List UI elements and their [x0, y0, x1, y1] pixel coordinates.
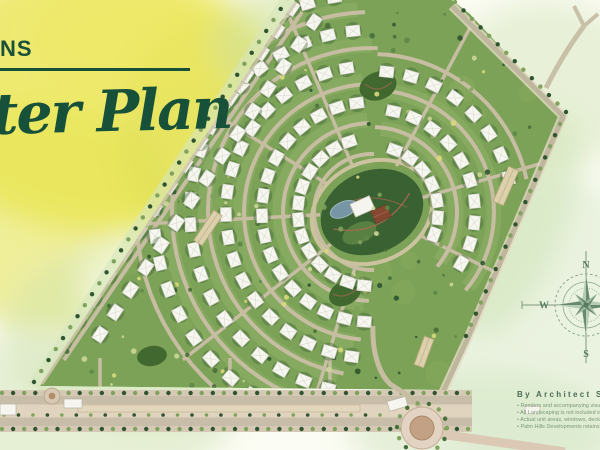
disclaimer-item: Actual unit areas, windows, decks, porc	[517, 417, 600, 424]
compass-label-south: S	[583, 349, 589, 360]
compass-label-west: W	[539, 301, 549, 312]
credits-block: By Architect Sheha Renders and accompany…	[517, 390, 600, 431]
small-roundabout	[44, 388, 60, 404]
disclaimer-item: Renders and accompanying visual mate	[517, 403, 600, 410]
median-strip-building	[78, 405, 360, 412]
compass-label-north: N	[582, 260, 590, 271]
disclaimer-item: All Landscaping is not included in the p	[517, 410, 600, 417]
disclaimer-list: Renders and accompanying visual mate All…	[517, 403, 600, 431]
disclaimer-item: Palm Hills Developments retains the rig	[517, 424, 600, 431]
master-plan-map: N W S	[0, 0, 600, 450]
architect-byline: By Architect Sheha	[517, 390, 600, 399]
master-plan-poster: N W S NS ter Plan By Architect Sheha Ren…	[0, 0, 600, 450]
boulevard	[0, 390, 540, 432]
